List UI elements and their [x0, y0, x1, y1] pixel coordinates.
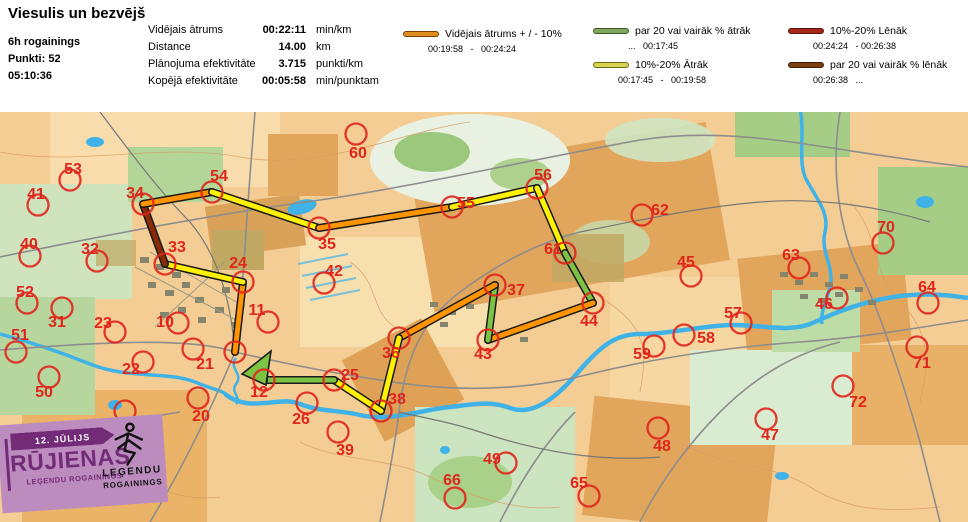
control-label-31: 31 — [48, 314, 66, 331]
control-label-63: 63 — [782, 247, 800, 264]
control-label-46: 46 — [815, 296, 833, 313]
stat-value-plan-eff: 3.715 — [236, 58, 306, 70]
control-label-20: 20 — [192, 408, 210, 425]
control-label-42: 42 — [325, 263, 343, 280]
control-label-62: 62 — [651, 202, 669, 219]
control-label-45: 45 — [677, 254, 695, 271]
control-label-12: 12 — [250, 384, 268, 401]
control-label-59: 59 — [633, 346, 651, 363]
control-label-54: 54 — [210, 168, 228, 185]
legend-line-brown-icon — [788, 62, 824, 68]
control-label-32: 32 — [81, 241, 99, 258]
legend-range: ... 00:17:45 — [628, 41, 678, 51]
control-label-23: 23 — [94, 315, 112, 332]
control-label-21: 21 — [196, 356, 214, 373]
control-label-70: 70 — [877, 219, 895, 236]
control-label-52: 52 — [16, 284, 34, 301]
control-label-25: 25 — [341, 367, 359, 384]
control-label-50: 50 — [35, 384, 53, 401]
stat-unit-distance: km — [316, 41, 331, 53]
team-points: Punkti: 52 — [8, 53, 61, 65]
legend-range: 00:19:58 - 00:24:24 — [428, 44, 516, 54]
control-label-35: 35 — [318, 236, 336, 253]
control-label-37: 37 — [507, 282, 525, 299]
stat-value-speed: 00:22:11 — [236, 24, 306, 36]
map: 5341403252312310512221502030263942116062… — [0, 112, 968, 522]
control-label-11: 11 — [249, 302, 266, 319]
legend-item-slow20: par 20 vai vairāk % lēnāk — [788, 59, 947, 71]
orienteer-logo-icon — [109, 421, 150, 468]
legend-item-fast10: 10%-20% Ātrāk — [593, 59, 708, 71]
control-label-10: 10 — [156, 314, 174, 331]
page-title: Viesulis un bezvējš — [8, 5, 145, 22]
control-label-57: 57 — [724, 305, 742, 322]
route-analysis-page: Viesulis un bezvējš 6h rogainings Punkti… — [0, 0, 968, 522]
control-label-72: 72 — [849, 394, 867, 411]
control-label-65: 65 — [570, 475, 588, 492]
stat-unit-total-eff: min/punktam — [316, 75, 379, 87]
control-label-60: 60 — [349, 145, 367, 162]
stat-unit-plan-eff: punkti/km — [316, 58, 363, 70]
team-category: 6h rogainings — [8, 36, 80, 48]
control-label-56: 56 — [534, 167, 552, 184]
legend-label: 10%-20% Ātrāk — [635, 59, 708, 71]
legend-range: 00:26:38 ... — [813, 75, 863, 85]
legend-label: Vidējais ātrums + / - 10% — [445, 28, 562, 40]
control-label-44: 44 — [580, 313, 598, 330]
control-label-51: 51 — [11, 327, 29, 344]
legend-item-average: Vidējais ātrums + / - 10% — [403, 28, 562, 40]
legend-line-yellow-icon — [593, 62, 629, 68]
control-label-36: 36 — [382, 345, 400, 362]
legend-label: par 20 vai vairāk % ātrāk — [635, 25, 751, 37]
control-label-64: 64 — [918, 279, 936, 296]
control-label-26: 26 — [292, 411, 310, 428]
stat-value-distance: 14.00 — [236, 41, 306, 53]
legend-item-slow10: 10%-20% Lēnāk — [788, 25, 907, 37]
team-time: 05:10:36 — [8, 70, 52, 82]
control-label-41: 41 — [27, 186, 45, 203]
control-label-24: 24 — [229, 255, 247, 272]
control-label-48: 48 — [653, 438, 671, 455]
control-label-49: 49 — [483, 451, 501, 468]
stat-value-total-eff: 00:05:58 — [236, 75, 306, 87]
legend-line-green-icon — [593, 28, 629, 34]
stat-label-speed: Vidējais ātrums — [148, 24, 223, 36]
legend-item-fast20: par 20 vai vairāk % ātrāk — [593, 25, 751, 37]
header: Viesulis un bezvējš 6h rogainings Punkti… — [0, 0, 968, 112]
control-label-71: 71 — [913, 355, 931, 372]
legend-range: 00:17:45 - 00:19:58 — [618, 75, 706, 85]
control-label-47: 47 — [761, 427, 779, 444]
control-label-43: 43 — [474, 346, 492, 363]
control-label-22: 22 — [122, 361, 140, 378]
control-label-61: 61 — [544, 241, 562, 258]
stat-unit-speed: min/km — [316, 24, 351, 36]
control-label-55: 55 — [457, 195, 475, 212]
control-label-58: 58 — [697, 330, 715, 347]
control-label-53: 53 — [64, 161, 82, 178]
legend-range: 00:24:24 - 00:26:38 — [813, 41, 896, 51]
control-label-38: 38 — [388, 391, 406, 408]
control-label-66: 66 — [443, 472, 461, 489]
legend-line-red-icon — [788, 28, 824, 34]
legend-label: 10%-20% Lēnāk — [830, 25, 907, 37]
control-label-33: 33 — [168, 239, 186, 256]
control-label-40: 40 — [20, 236, 38, 253]
control-label-39: 39 — [336, 442, 354, 459]
stat-label-distance: Distance — [148, 41, 191, 53]
legend-line-orange-icon — [403, 31, 439, 37]
stat-label-total-eff: Kopējā efektivitāte — [148, 75, 238, 87]
event-banner: 12. JŪLIJS RŪJIENAS LEĢENDU ROGAININGS L… — [0, 414, 168, 513]
legend-label: par 20 vai vairāk % lēnāk — [830, 59, 947, 71]
control-label-34: 34 — [126, 185, 144, 202]
